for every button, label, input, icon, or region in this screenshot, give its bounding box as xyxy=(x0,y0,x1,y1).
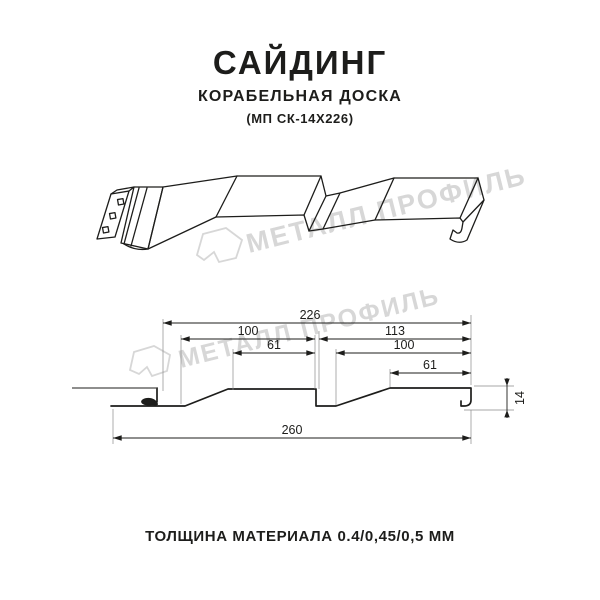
dim-label-top-total: 226 xyxy=(300,308,321,322)
thickness-note: ТОЛЩИНА МАТЕРИАЛА 0.4/0,45/0,5 ММ xyxy=(0,528,600,545)
dim-label-left-upper: 100 xyxy=(238,324,259,338)
brand-logo-watermark-icon xyxy=(130,346,170,376)
technical-drawing: МЕТАЛЛ ПРОФИЛЬ МЕТАЛЛ ПРОФИЛЬ xyxy=(0,0,600,600)
dim-label-height: 14 xyxy=(513,391,527,405)
siding-spec-sheet: САЙДИНГ КОРАБЕЛЬНАЯ ДОСКА (МП СК-14Х226)… xyxy=(0,0,600,600)
dim-label-right-inner: 61 xyxy=(423,358,437,372)
dim-label-bottom-total: 260 xyxy=(282,423,303,437)
lock-curl xyxy=(141,398,158,406)
dim-label-left-inner: 61 xyxy=(267,338,281,352)
dim-label-right-mid: 100 xyxy=(394,338,415,352)
brand-logo-watermark-icon xyxy=(197,228,242,262)
brand-watermark-text: МЕТАЛЛ ПРОФИЛЬ xyxy=(243,160,529,259)
dim-label-right-upper: 113 xyxy=(385,324,405,338)
